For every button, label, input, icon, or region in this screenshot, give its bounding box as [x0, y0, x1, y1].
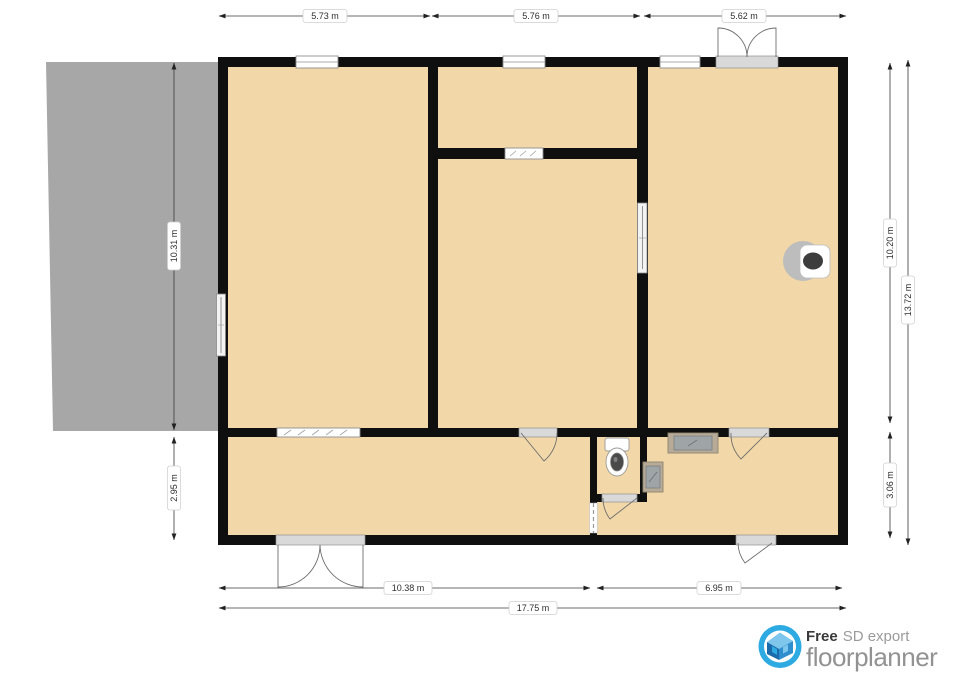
svg-text:10.20 m: 10.20 m — [885, 227, 895, 260]
logo-brand-text: floorplanner — [806, 642, 938, 672]
svg-text:6.95 m: 6.95 m — [705, 583, 733, 593]
deck-area — [46, 62, 222, 431]
sliding-door-middle-wall — [638, 203, 648, 273]
double-door-bottom — [276, 535, 365, 587]
svg-text:13.72 m: 13.72 m — [903, 284, 913, 317]
svg-text:5.76 m: 5.76 m — [522, 11, 550, 21]
dimension-label-bottom-1: 10.38 m — [384, 582, 432, 595]
window-top-3 — [660, 56, 700, 68]
kitchen-counter-icon — [668, 433, 718, 453]
toilet-main-icon — [783, 241, 830, 281]
window-hatch-interior — [505, 148, 543, 159]
dimension-label-right-1: 10.20 m — [884, 219, 897, 267]
svg-text:17.75 m: 17.75 m — [517, 603, 550, 613]
svg-text:3.06 m: 3.06 m — [885, 471, 895, 499]
svg-text:5.73 m: 5.73 m — [311, 11, 339, 21]
dimension-label-right-2: 3.06 m — [884, 463, 897, 507]
floorplan-canvas: 5.73 m 5.76 m 5.62 m 10.31 m 2.95 m 10.2… — [0, 0, 960, 679]
wall-interior-v1 — [428, 57, 438, 437]
sliding-door-left-wall — [217, 294, 226, 356]
dimension-label-right-outer: 13.72 m — [902, 276, 915, 324]
dimension-label-top-2: 5.76 m — [514, 10, 558, 23]
dimension-label-left-2: 2.95 m — [168, 466, 181, 510]
dimension-label-top-3: 5.62 m — [722, 10, 766, 23]
floorplanner-logo: FreeSD export floorplanner — [759, 625, 939, 672]
building-floor — [223, 62, 843, 540]
toilet-wc-icon — [605, 438, 629, 476]
kitchen-sink-icon — [643, 462, 663, 492]
svg-text:5.62 m: 5.62 m — [730, 11, 758, 21]
wall-exterior-right — [838, 57, 848, 545]
dimension-label-top-1: 5.73 m — [303, 10, 347, 23]
wall-wc-left — [590, 437, 597, 497]
door-exterior-bottom-right — [736, 535, 776, 563]
dimension-label-bottom-outer: 17.75 m — [509, 602, 557, 615]
dimension-label-left-1: 10.31 m — [168, 222, 181, 270]
double-door-top — [716, 28, 778, 68]
window-top-2 — [503, 56, 545, 68]
floorplan-export-page: 5.73 m 5.76 m 5.62 m 10.31 m 2.95 m 10.2… — [0, 0, 960, 679]
svg-text:2.95 m: 2.95 m — [169, 474, 179, 502]
wall-opening-dashed — [590, 503, 598, 533]
svg-text:10.31 m: 10.31 m — [169, 230, 179, 263]
window-top-1 — [296, 56, 338, 68]
window-interior-long — [277, 428, 360, 437]
svg-text:10.38 m: 10.38 m — [392, 583, 425, 593]
dimension-label-bottom-2: 6.95 m — [697, 582, 741, 595]
